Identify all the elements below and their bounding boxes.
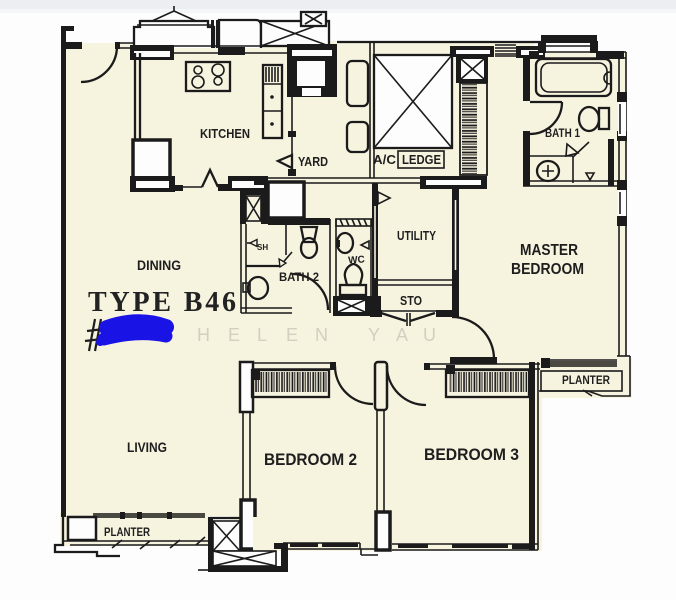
svg-text:BATH 2: BATH 2 [279, 270, 319, 284]
svg-text:BATH 1: BATH 1 [545, 126, 580, 140]
svg-text:PLANTER: PLANTER [562, 373, 610, 387]
svg-text:L: L [257, 325, 267, 345]
svg-text:TYPE B46: TYPE B46 [88, 287, 236, 318]
svg-text:MASTER: MASTER [520, 242, 578, 259]
svg-text:N: N [315, 325, 328, 345]
svg-text:BEDROOM: BEDROOM [511, 261, 584, 278]
svg-text:A/C: A/C [373, 152, 397, 167]
svg-text:YARD: YARD [298, 154, 328, 169]
svg-text:STO: STO [400, 293, 422, 308]
svg-text:E: E [286, 325, 298, 345]
svg-text:PLANTER: PLANTER [104, 525, 150, 539]
svg-text:BEDROOM 3: BEDROOM 3 [424, 445, 519, 464]
svg-text:Y: Y [368, 325, 380, 345]
svg-text:LEDGE: LEDGE [402, 152, 441, 167]
svg-text:LIVING: LIVING [127, 439, 167, 455]
svg-text:H: H [197, 325, 210, 345]
svg-text:SH: SH [257, 243, 268, 252]
svg-text:BEDROOM 2: BEDROOM 2 [264, 450, 357, 469]
svg-text:U: U [423, 325, 436, 345]
svg-text:A: A [396, 325, 408, 345]
svg-text:DINING: DINING [137, 257, 181, 273]
svg-text:E: E [228, 325, 240, 345]
svg-text:KITCHEN: KITCHEN [200, 126, 250, 141]
svg-text:UTILITY: UTILITY [397, 228, 436, 243]
